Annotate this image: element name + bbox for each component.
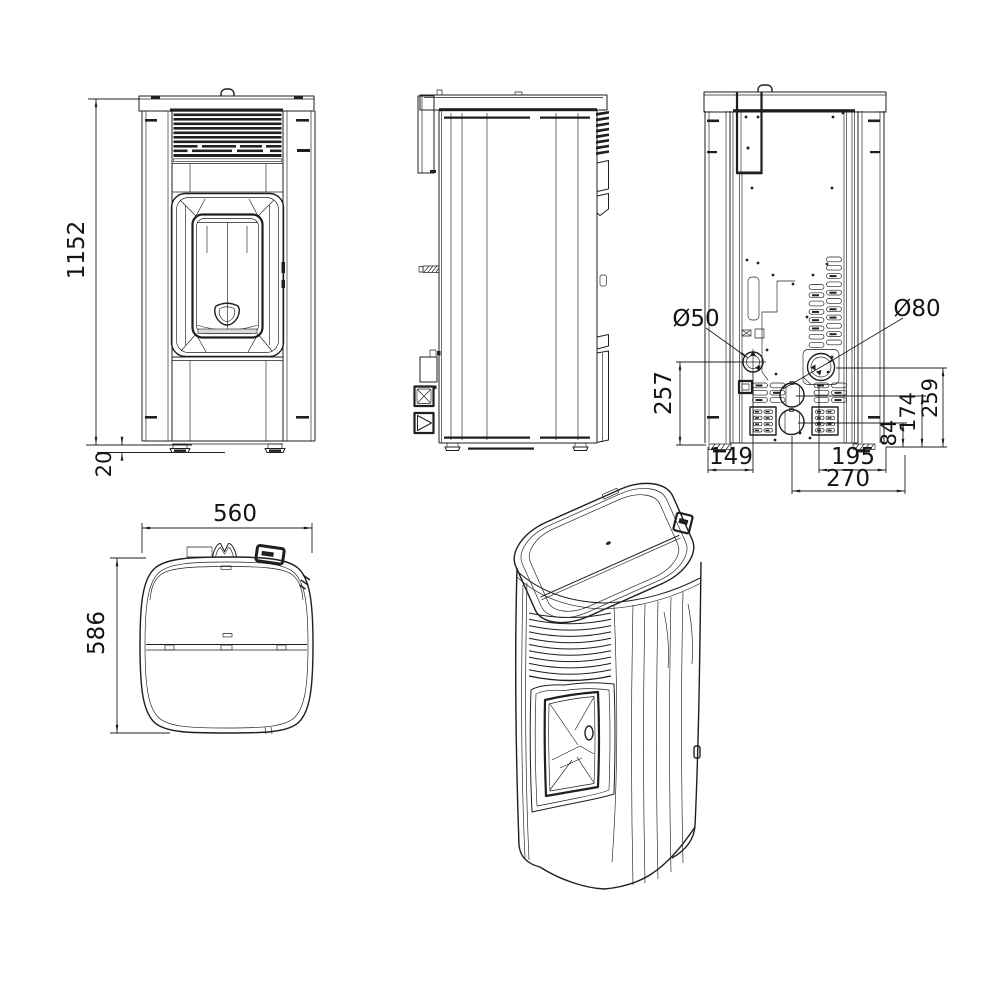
front-cap-shadow [170, 109, 283, 112]
dim-label-149: 149 [709, 444, 753, 470]
dim-label-174: 174 [896, 392, 920, 432]
dim-front-height: 1152 [64, 99, 192, 445]
stove-drawing-svg: 1152 20 560 586 Ø50 Ø80 [0, 0, 1000, 1000]
dim-flue-offset: 195 [819, 385, 886, 473]
back-left-column [705, 111, 730, 443]
dim-label-259: 259 [918, 378, 942, 418]
side-lower-fittings [415, 350, 441, 433]
front-door-window [193, 215, 263, 338]
back-screws [745, 112, 845, 442]
iso-display-panel [673, 512, 693, 533]
iso-body [516, 562, 701, 889]
dim-label-257: 257 [651, 371, 677, 415]
door-handle [215, 303, 240, 325]
top-seam [146, 645, 307, 651]
dim-label-d50: Ø50 [672, 306, 719, 332]
side-cap-shadow [439, 108, 597, 111]
front-view [139, 89, 315, 453]
side-view [415, 90, 610, 451]
back-left-bolt-plate [750, 407, 776, 435]
isometric-view [503, 469, 703, 889]
back-cap-shadow [733, 109, 855, 112]
front-left-column [142, 111, 172, 441]
front-door [172, 194, 286, 357]
side-feet [445, 443, 588, 451]
dim-label-270: 270 [826, 466, 870, 492]
side-door-edge [597, 161, 609, 443]
back-top-handle [758, 85, 772, 92]
back-view [704, 85, 886, 452]
top-bottom-tab [265, 727, 272, 734]
back-pellet-chute [737, 92, 762, 174]
dim-intake-diameter: Ø50 [672, 306, 748, 358]
dim-label-586: 586 [84, 611, 110, 655]
front-right-column [283, 111, 315, 441]
top-view [140, 543, 313, 734]
side-front-louvres [596, 111, 609, 155]
back-upper-vents [809, 257, 842, 347]
dim-intake-height: 257 [651, 362, 741, 445]
window-bottom-trim [198, 329, 257, 334]
front-grille [172, 114, 283, 164]
iso-handle [585, 726, 593, 740]
dim-label-560: 560 [213, 501, 257, 527]
dim-label-d80: Ø80 [893, 296, 940, 322]
iso-rim-edge [517, 571, 700, 603]
side-top-knob [437, 90, 442, 95]
back-right-column [858, 111, 884, 443]
top-slot-b [223, 634, 232, 637]
side-intake-stub [419, 266, 439, 273]
mid-port [780, 382, 804, 408]
top-display-panel [256, 545, 285, 564]
iso-louvres [529, 613, 611, 681]
dim-top-width: 560 [142, 501, 312, 553]
dim-mid-port-height: 174 [796, 392, 926, 447]
power-socket [739, 381, 752, 393]
back-rating-plate [748, 277, 759, 320]
low-port [779, 409, 804, 435]
back-right-bolt-plate [812, 407, 838, 435]
side-body [439, 110, 597, 443]
top-vent-box [187, 547, 212, 557]
dim-top-depth: 586 [84, 558, 170, 733]
iso-door [530, 683, 615, 812]
front-top-handle [221, 89, 234, 96]
iso-top-rim [503, 469, 703, 635]
technical-drawing-canvas: 1152 20 560 586 Ø50 Ø80 [0, 0, 1000, 1000]
dim-label-20: 20 [92, 451, 116, 478]
side-rear-channel [418, 96, 436, 173]
dim-label-1152: 1152 [64, 221, 90, 280]
back-recess-contour [762, 281, 795, 380]
